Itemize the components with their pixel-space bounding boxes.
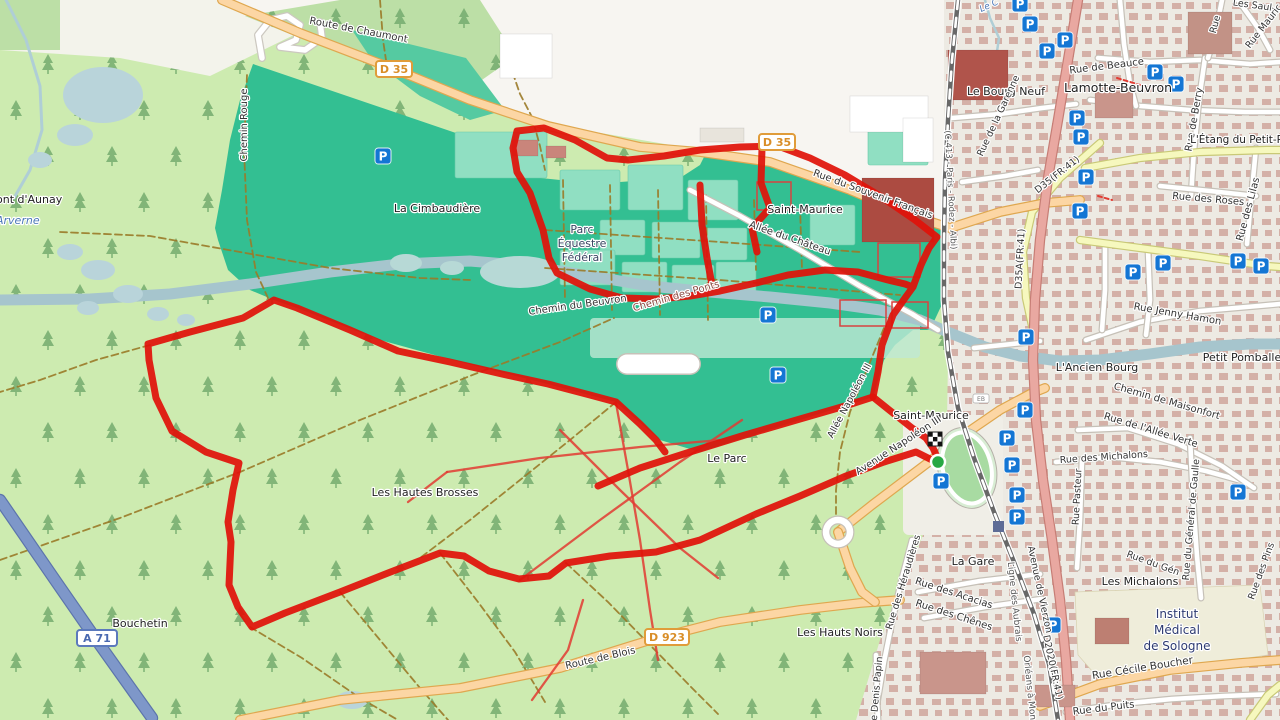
parking-icon: P	[1017, 402, 1033, 418]
place-label: L'Étang du Petit-R	[1190, 133, 1280, 146]
svg-text:P: P	[1159, 257, 1168, 271]
svg-text:P: P	[1234, 255, 1243, 269]
parking-icon: P	[1057, 32, 1073, 48]
road-shield: D 35	[376, 61, 412, 77]
road-shield: D 35	[759, 134, 795, 150]
railway-label: EB	[977, 396, 985, 403]
place-label: Médical	[1154, 623, 1200, 637]
building	[1095, 618, 1129, 644]
place-label: Les Hautes Brosses	[372, 486, 479, 499]
parking-icon: P	[933, 473, 949, 489]
svg-text:P: P	[1172, 78, 1181, 92]
parking-icon: P	[999, 430, 1015, 446]
svg-text:P: P	[774, 369, 783, 383]
parking-icon: P	[1230, 253, 1246, 269]
street-label: Chemin Rouge	[239, 89, 250, 162]
parking-icon: P	[1155, 255, 1171, 271]
svg-text:P: P	[1008, 459, 1017, 473]
svg-text:D 35: D 35	[380, 63, 408, 76]
place-label: La Cimbaudière	[394, 202, 481, 215]
openstreetmap-canvas[interactable]: PPPPPPPPPPPPPPPPPPPPPPPPPPD 35D 35D 923A…	[0, 0, 1280, 720]
place-label: L'Ancien Bourg	[1056, 361, 1139, 374]
svg-text:P: P	[1234, 486, 1243, 500]
svg-text:D 35: D 35	[763, 136, 791, 149]
svg-text:P: P	[1021, 404, 1030, 418]
place-label: Lamotte-Beuvron	[1064, 80, 1172, 95]
parking-icon: P	[760, 307, 776, 323]
building	[1095, 92, 1133, 118]
parking-icon: P	[1253, 258, 1269, 274]
parking-icon: P	[1004, 457, 1020, 473]
parking-icon: P	[1073, 129, 1089, 145]
svg-text:P: P	[379, 150, 388, 164]
svg-text:D 923: D 923	[649, 631, 685, 644]
parking-icon: P	[1039, 43, 1055, 59]
building	[546, 146, 566, 158]
place-label: La Gare	[952, 555, 995, 568]
water-label: Arverne	[0, 214, 40, 227]
svg-text:P: P	[1022, 331, 1031, 345]
parking-icon: P	[770, 367, 786, 383]
place-label: Fédéral	[562, 251, 603, 264]
svg-text:P: P	[1003, 432, 1012, 446]
station-icon	[993, 521, 1004, 532]
start-point-marker	[931, 455, 945, 469]
svg-text:A 71: A 71	[83, 632, 111, 645]
place-label: Les Hauts Noirs	[797, 626, 883, 639]
svg-text:P: P	[937, 475, 946, 489]
place-label: ont d'Aunay	[0, 193, 63, 206]
parking-icon: P	[1078, 169, 1094, 185]
svg-text:P: P	[1129, 266, 1138, 280]
place-label: Parc	[570, 223, 593, 236]
place-label: Institut	[1156, 607, 1199, 621]
building	[700, 128, 744, 142]
svg-text:P: P	[1016, 0, 1025, 12]
place-label: de Sologne	[1143, 639, 1210, 653]
place-label: Bouchetin	[112, 617, 167, 630]
finish-flag-marker	[928, 432, 942, 446]
building	[500, 34, 552, 78]
parking-icon: P	[1125, 264, 1141, 280]
svg-text:P: P	[1082, 171, 1091, 185]
parking-icon: P	[1147, 64, 1163, 80]
svg-text:P: P	[1061, 34, 1070, 48]
road-shield: D 923	[645, 629, 689, 645]
svg-text:P: P	[1076, 205, 1085, 219]
building	[920, 652, 986, 694]
svg-text:P: P	[1151, 66, 1160, 80]
svg-text:P: P	[1013, 489, 1022, 503]
parking-icon: P	[1022, 16, 1038, 32]
building	[903, 118, 933, 162]
svg-text:P: P	[1013, 511, 1022, 525]
svg-text:P: P	[1257, 260, 1266, 274]
map-viewport[interactable]: PPPPPPPPPPPPPPPPPPPPPPPPPPD 35D 35D 923A…	[0, 0, 1280, 720]
parking-icon: P	[1009, 487, 1025, 503]
parking-icon: P	[1012, 0, 1028, 12]
parking-icon: P	[1230, 484, 1246, 500]
parking-icon: P	[1009, 509, 1025, 525]
svg-text:P: P	[1043, 45, 1052, 59]
svg-text:P: P	[1026, 18, 1035, 32]
place-label: Saint-Maurice	[767, 203, 843, 216]
parking-icon: P	[1018, 329, 1034, 345]
parking-icon: P	[375, 148, 391, 164]
place-label: Les Michalons	[1102, 575, 1179, 588]
svg-text:P: P	[1073, 112, 1082, 126]
place-label: Le Parc	[707, 452, 746, 465]
parking-icon: P	[1072, 203, 1088, 219]
svg-text:P: P	[764, 309, 773, 323]
place-label: Petit Pomballe	[1203, 351, 1280, 364]
svg-text:P: P	[1077, 131, 1086, 145]
place-label: Équestre	[558, 237, 607, 250]
road-shield: A 71	[77, 630, 117, 646]
parking-icon: P	[1069, 110, 1085, 126]
